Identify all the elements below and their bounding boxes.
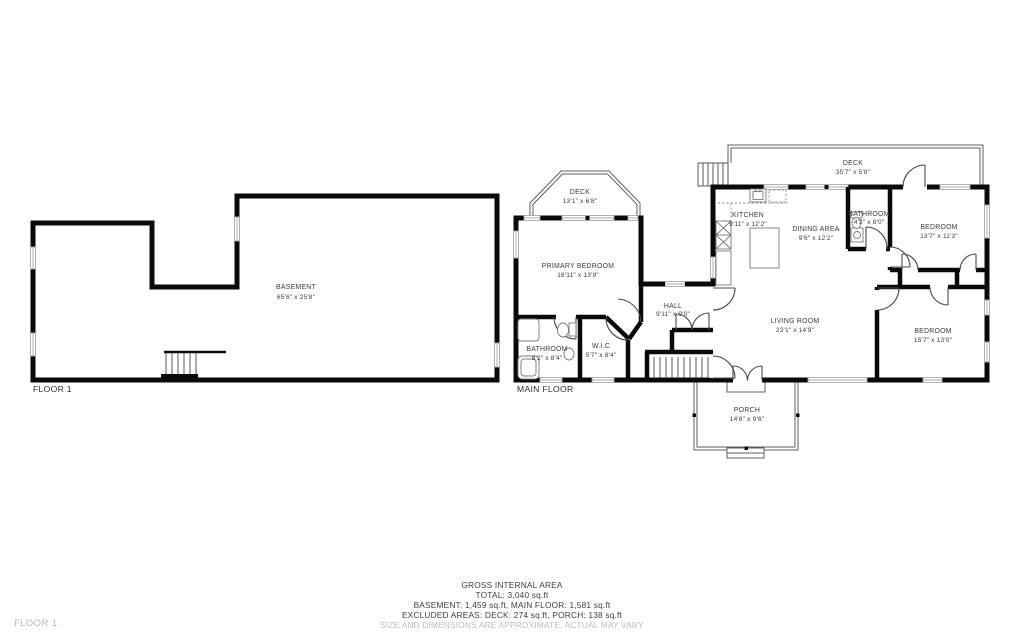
area-summary: GROSS INTERNAL AREA TOTAL: 3,040 sq.ft B… xyxy=(380,580,644,630)
bathroom-main-label: BATHROOM xyxy=(848,211,889,218)
wic-dims: 5'7" x 8'4" xyxy=(586,352,617,359)
primary-bedroom-label: PRIMARY BEDROOM xyxy=(542,263,614,270)
bathroom-main-dims: 4'2" x 8'0" xyxy=(854,219,885,226)
dining-label: DINING AREA xyxy=(792,226,839,233)
basement-exterior-walls xyxy=(33,196,497,380)
bedroom-bottom-label: BEDROOM xyxy=(914,328,951,335)
deck-left-dims: 13'1" x 6'8" xyxy=(563,198,598,205)
hall-label: HALL xyxy=(664,303,682,310)
page-floor-indicator: FLOOR 1 xyxy=(14,618,57,629)
basement-floor-title: FLOOR 1 xyxy=(33,384,72,394)
deck-right-label: DECK xyxy=(843,160,863,167)
bathroom-left-dims: 8'2" x 8'4" xyxy=(532,355,563,362)
kitchen-dims: 9'11" x 12'2" xyxy=(729,221,767,228)
slider-handle-right xyxy=(825,185,829,189)
basement-floor xyxy=(31,196,500,380)
basement-label: BASEMENT xyxy=(276,284,316,291)
deck-door xyxy=(903,165,925,187)
dining-table xyxy=(750,228,779,268)
shower xyxy=(518,319,539,341)
toilet xyxy=(558,323,569,337)
bedroom-top-dims: 13'7" x 11'3" xyxy=(920,233,958,240)
deck-stairs xyxy=(698,163,728,186)
slider-handle-left xyxy=(586,216,590,220)
toilet-tank xyxy=(569,323,576,336)
deck-right-dims: 35'7" x 5'8" xyxy=(836,169,871,176)
summary-title: GROSS INTERNAL AREA xyxy=(461,580,563,590)
summary-excluded: EXCLUDED AREAS: DECK: 274 sq.ft, PORCH: … xyxy=(402,610,623,620)
primary-bedroom-dims: 16'11" x 13'9" xyxy=(557,272,599,279)
kitchen-counter xyxy=(716,251,731,285)
bedroom-top-label: BEDROOM xyxy=(920,224,957,231)
bathroom-left-label: BATHROOM xyxy=(526,346,567,353)
kitchen-label: KITCHEN xyxy=(732,212,764,219)
main-floor-title: MAIN FLOOR xyxy=(517,384,573,394)
floor-plan-page: BASEMENT 65'6" x 25'8" DECK 13'1" x 6'8"… xyxy=(0,0,1024,640)
summary-breakdown: BASEMENT: 1,459 sq.ft, MAIN FLOOR: 1,581… xyxy=(414,600,611,610)
summary-disclaimer: SIZE AND DIMENSIONS ARE APPROXIMATE, ACT… xyxy=(380,620,644,630)
summary-total: TOTAL: 3,040 sq.ft xyxy=(476,590,549,600)
basement-dims: 65'6" x 25'8" xyxy=(277,294,316,301)
porch-dims: 14'6" x 9'6" xyxy=(730,416,765,423)
wic-label: W.I.C xyxy=(592,343,610,350)
hall-dims: 9'11" x 9'0" xyxy=(656,311,690,318)
living-dims: 23'1" x 14'9" xyxy=(776,327,815,334)
bedroom-bottom-dims: 15'7" x 13'0" xyxy=(914,337,953,344)
living-label: LIVING ROOM xyxy=(771,318,820,325)
floor-plan-canvas: BASEMENT 65'6" x 25'8" DECK 13'1" x 6'8"… xyxy=(0,0,1024,640)
porch-label: PORCH xyxy=(734,407,760,414)
deck-left-label: DECK xyxy=(570,189,590,196)
dining-dims: 9'6" x 12'2" xyxy=(799,235,834,242)
